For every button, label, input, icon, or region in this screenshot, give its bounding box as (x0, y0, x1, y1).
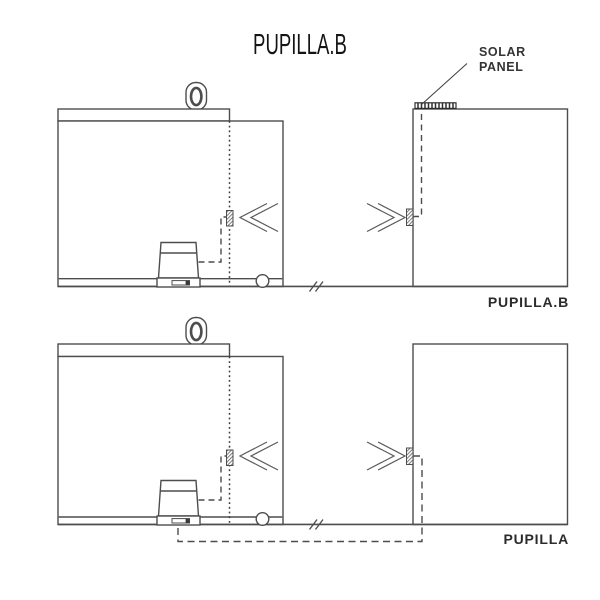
gearmotor-icon (157, 481, 200, 526)
solar-panel-icon (415, 103, 456, 109)
column (413, 344, 568, 525)
photocell-tx-icon (227, 211, 234, 227)
variant-label-pupilla: PUPILLA (504, 531, 570, 547)
column (413, 109, 568, 287)
solar-panel-label-line1: SOLAR (479, 45, 526, 60)
top-diagram (58, 64, 568, 292)
solar-panel-label-line2: PANEL (479, 60, 526, 75)
gearmotor-icon (157, 243, 200, 288)
wheel-icon (256, 275, 269, 288)
photocell-tx-icon (227, 450, 234, 466)
signal-waves-right-icon (367, 204, 405, 232)
diagram-canvas: PUPILLA.B SOLAR PANEL PUPILLA.B PUPILLA (0, 0, 600, 600)
wheel-icon (256, 513, 269, 526)
solar-leader-line (422, 64, 468, 105)
gate-rail (58, 344, 230, 357)
variant-label-pupilla-b: PUPILLA.B (488, 294, 569, 310)
eye-ring-icon (186, 318, 207, 346)
photocell-rx-icon (407, 209, 414, 226)
gate-rail (58, 109, 230, 121)
solar-panel-label: SOLAR PANEL (479, 45, 526, 75)
photocell-rx-icon (407, 448, 414, 465)
page-title: PUPILLA.B (108, 29, 492, 62)
bottom-diagram (58, 318, 568, 542)
signal-waves-right-icon (367, 442, 405, 470)
eye-ring-icon (186, 83, 207, 111)
